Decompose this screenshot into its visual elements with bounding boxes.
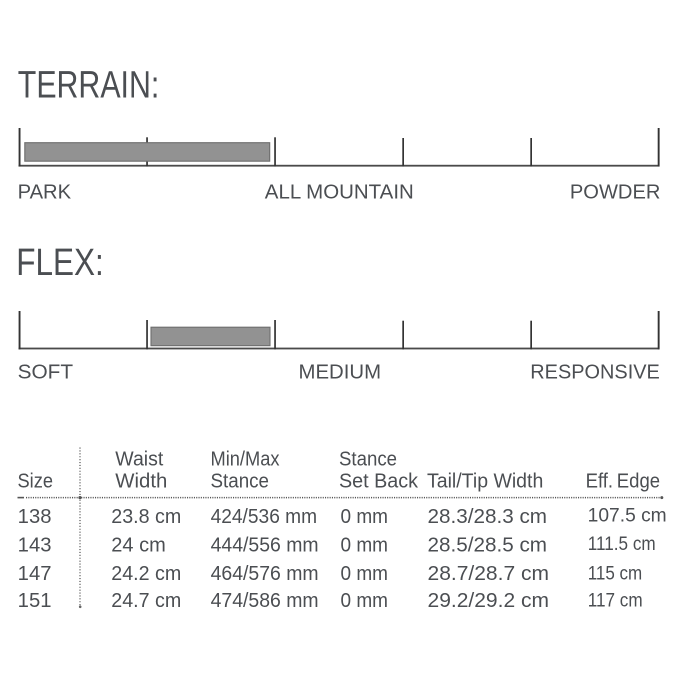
svg-text:Stance: Stance [339,449,397,471]
svg-text:MEDIUM: MEDIUM [299,362,382,384]
svg-text:28.3/28.3 cm: 28.3/28.3 cm [428,506,548,528]
svg-text:Min/Max: Min/Max [211,449,280,471]
svg-text:SOFT: SOFT [18,362,74,384]
svg-text:Set Back: Set Back [339,471,419,493]
svg-text:0 mm: 0 mm [341,590,389,612]
svg-text:117 cm: 117 cm [588,591,643,612]
svg-text:PARK: PARK [18,181,72,203]
svg-text:29.2/29.2 cm: 29.2/29.2 cm [428,590,550,612]
svg-text:444/556 mm: 444/556 mm [211,535,319,557]
svg-text:24.7 cm: 24.7 cm [111,590,181,612]
svg-text:POWDER: POWDER [570,181,661,203]
svg-text:Size: Size [18,471,54,493]
svg-text:0 mm: 0 mm [341,535,389,557]
svg-text:24.2 cm: 24.2 cm [111,563,181,585]
svg-text:TERRAIN:: TERRAIN: [18,65,160,107]
svg-text:FLEX:: FLEX: [16,242,104,284]
svg-text:107.5 cm: 107.5 cm [588,505,667,526]
svg-text:0 mm: 0 mm [341,563,389,585]
svg-text:23.8 cm: 23.8 cm [111,506,181,528]
svg-text:138: 138 [18,506,52,528]
svg-text:0 mm: 0 mm [341,506,389,528]
svg-text:464/576 mm: 464/576 mm [211,563,319,585]
svg-text:ALL MOUNTAIN: ALL MOUNTAIN [265,181,414,203]
svg-text:151: 151 [18,590,52,612]
svg-text:147: 147 [18,563,52,585]
svg-text:Stance: Stance [211,471,270,493]
svg-text:Waist: Waist [115,449,163,471]
svg-text:143: 143 [18,535,52,557]
svg-text:24 cm: 24 cm [111,535,166,557]
svg-text:111.5 cm: 111.5 cm [588,534,656,555]
svg-text:28.7/28.7 cm: 28.7/28.7 cm [428,563,550,585]
svg-text:RESPONSIVE: RESPONSIVE [530,362,660,384]
svg-text:474/586 mm: 474/586 mm [211,590,319,612]
svg-text:Width: Width [115,471,167,493]
svg-text:424/536 mm: 424/536 mm [211,506,318,528]
svg-text:Tail/Tip Width: Tail/Tip Width [427,471,543,493]
svg-text:28.5/28.5 cm: 28.5/28.5 cm [428,535,548,557]
svg-text:Eff. Edge: Eff. Edge [586,471,661,493]
svg-text:115 cm: 115 cm [588,564,643,585]
